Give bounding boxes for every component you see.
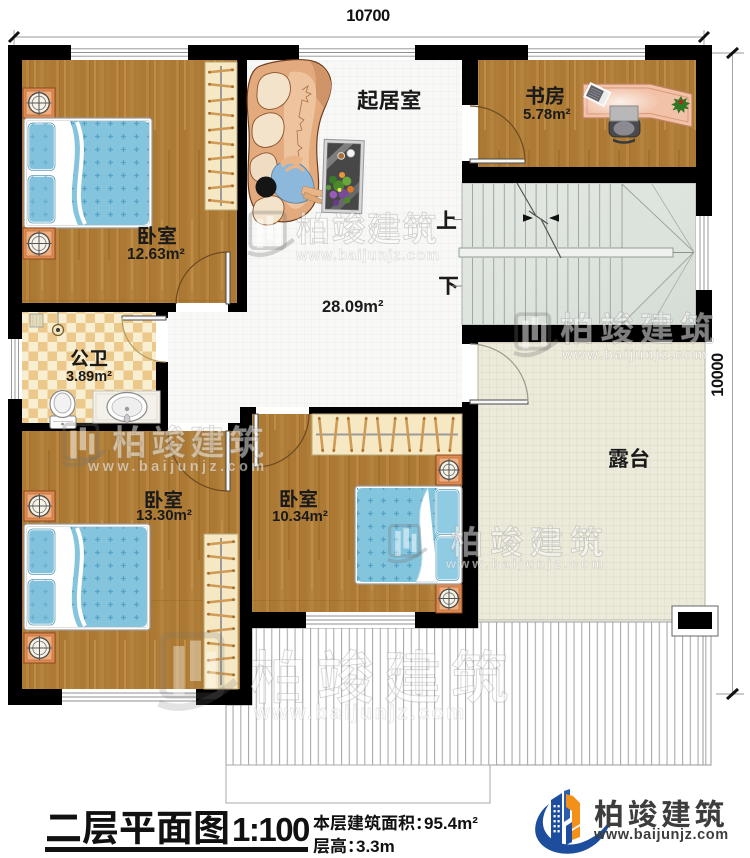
svg-text:www.baijunjz.com: www.baijunjz.com	[295, 248, 440, 264]
svg-text:10.34m²: 10.34m²	[272, 508, 328, 525]
svg-text:www.baijunjz.com: www.baijunjz.com	[561, 346, 708, 362]
svg-text:3.89m²: 3.89m²	[66, 369, 112, 385]
svg-text:www.baijunjz.com: www.baijunjz.com	[445, 556, 606, 571]
svg-text:3.3m: 3.3m	[356, 837, 395, 856]
svg-text:12.63m²: 12.63m²	[127, 246, 185, 263]
svg-text:13.30m²: 13.30m²	[136, 507, 192, 524]
svg-text:www.baijunjz.com: www.baijunjz.com	[593, 827, 729, 843]
svg-text:www.baijunjz.com: www.baijunjz.com	[253, 702, 467, 724]
svg-text:1:100: 1:100	[232, 811, 309, 848]
svg-text:95.4m²: 95.4m²	[424, 814, 478, 833]
svg-text:10000: 10000	[709, 353, 727, 397]
svg-text:www.baijunjz.com: www.baijunjz.com	[87, 459, 268, 475]
svg-text:5.78m²: 5.78m²	[523, 106, 571, 123]
svg-text:10700: 10700	[346, 7, 390, 25]
svg-text:28.09m²: 28.09m²	[322, 298, 384, 316]
